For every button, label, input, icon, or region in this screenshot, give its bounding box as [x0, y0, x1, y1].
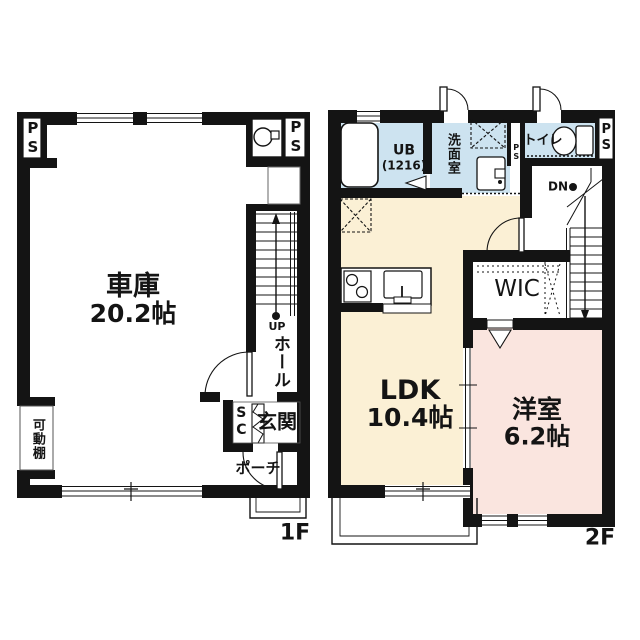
kitchen-icon [341, 268, 431, 313]
stair-arrow-up [272, 213, 280, 224]
hall-label: ホール [270, 335, 288, 389]
floor-label-2f: 2F [585, 526, 615, 549]
bedroom-size-label: 6.2帖 [504, 424, 571, 449]
up-label: UP [269, 321, 286, 333]
toilet-door [533, 87, 561, 111]
porch-step [250, 498, 306, 518]
stair-handrail-2f [567, 228, 571, 322]
garage-label: 車庫 [106, 273, 160, 301]
wic-label: WIC [494, 277, 540, 301]
bath-window [357, 110, 380, 123]
ldk-size-label: 10.4帖 [367, 405, 454, 431]
balcony [332, 498, 477, 544]
vanity-sink-icon [477, 157, 505, 190]
ps-label-1f-right: PS [287, 118, 303, 156]
kitchen-sink-icon [384, 271, 422, 298]
garage-window-left [77, 112, 133, 125]
movable-shelf-label: 可動棚 [30, 418, 44, 460]
bedroom-window-right [518, 514, 547, 527]
unit-bath-label: UB [393, 144, 415, 159]
ps-shaft-label: PS [511, 143, 519, 161]
stair-handrail-1f [291, 212, 295, 316]
garage-size-label: 20.2帖 [90, 301, 177, 327]
floor-plan-canvas: PS PS 車庫 20.2帖 可動棚 UP ホール SC 玄関 ポーチ 1F U… [0, 0, 640, 640]
floor-label-1f: 1F [280, 521, 310, 544]
bedroom-window-left [482, 514, 507, 527]
porch-label: ポーチ [235, 461, 280, 477]
washroom-label: 洗面室 [445, 133, 459, 175]
ldk-label: LDK [380, 377, 441, 405]
ps-label-1f-left: PS [24, 119, 40, 157]
garage-shutter [62, 482, 202, 501]
bathtub-icon [341, 123, 378, 187]
stair-void [268, 167, 300, 204]
hall-door [205, 352, 252, 396]
unit-bath-size-label: (1216) [382, 160, 426, 173]
ps-label-2f-right: PS [599, 122, 613, 154]
stairs-1f [256, 212, 301, 320]
toilet-label: トイレ [523, 134, 562, 148]
bedroom-label: 洋室 [512, 397, 562, 423]
dn-label: DN [548, 181, 568, 194]
water-heater-icon [252, 119, 282, 157]
shoe-closet-label: SC [234, 405, 249, 439]
entrance-label: 玄関 [257, 412, 297, 433]
washroom-door [440, 87, 468, 111]
garage-window-right [147, 112, 202, 125]
